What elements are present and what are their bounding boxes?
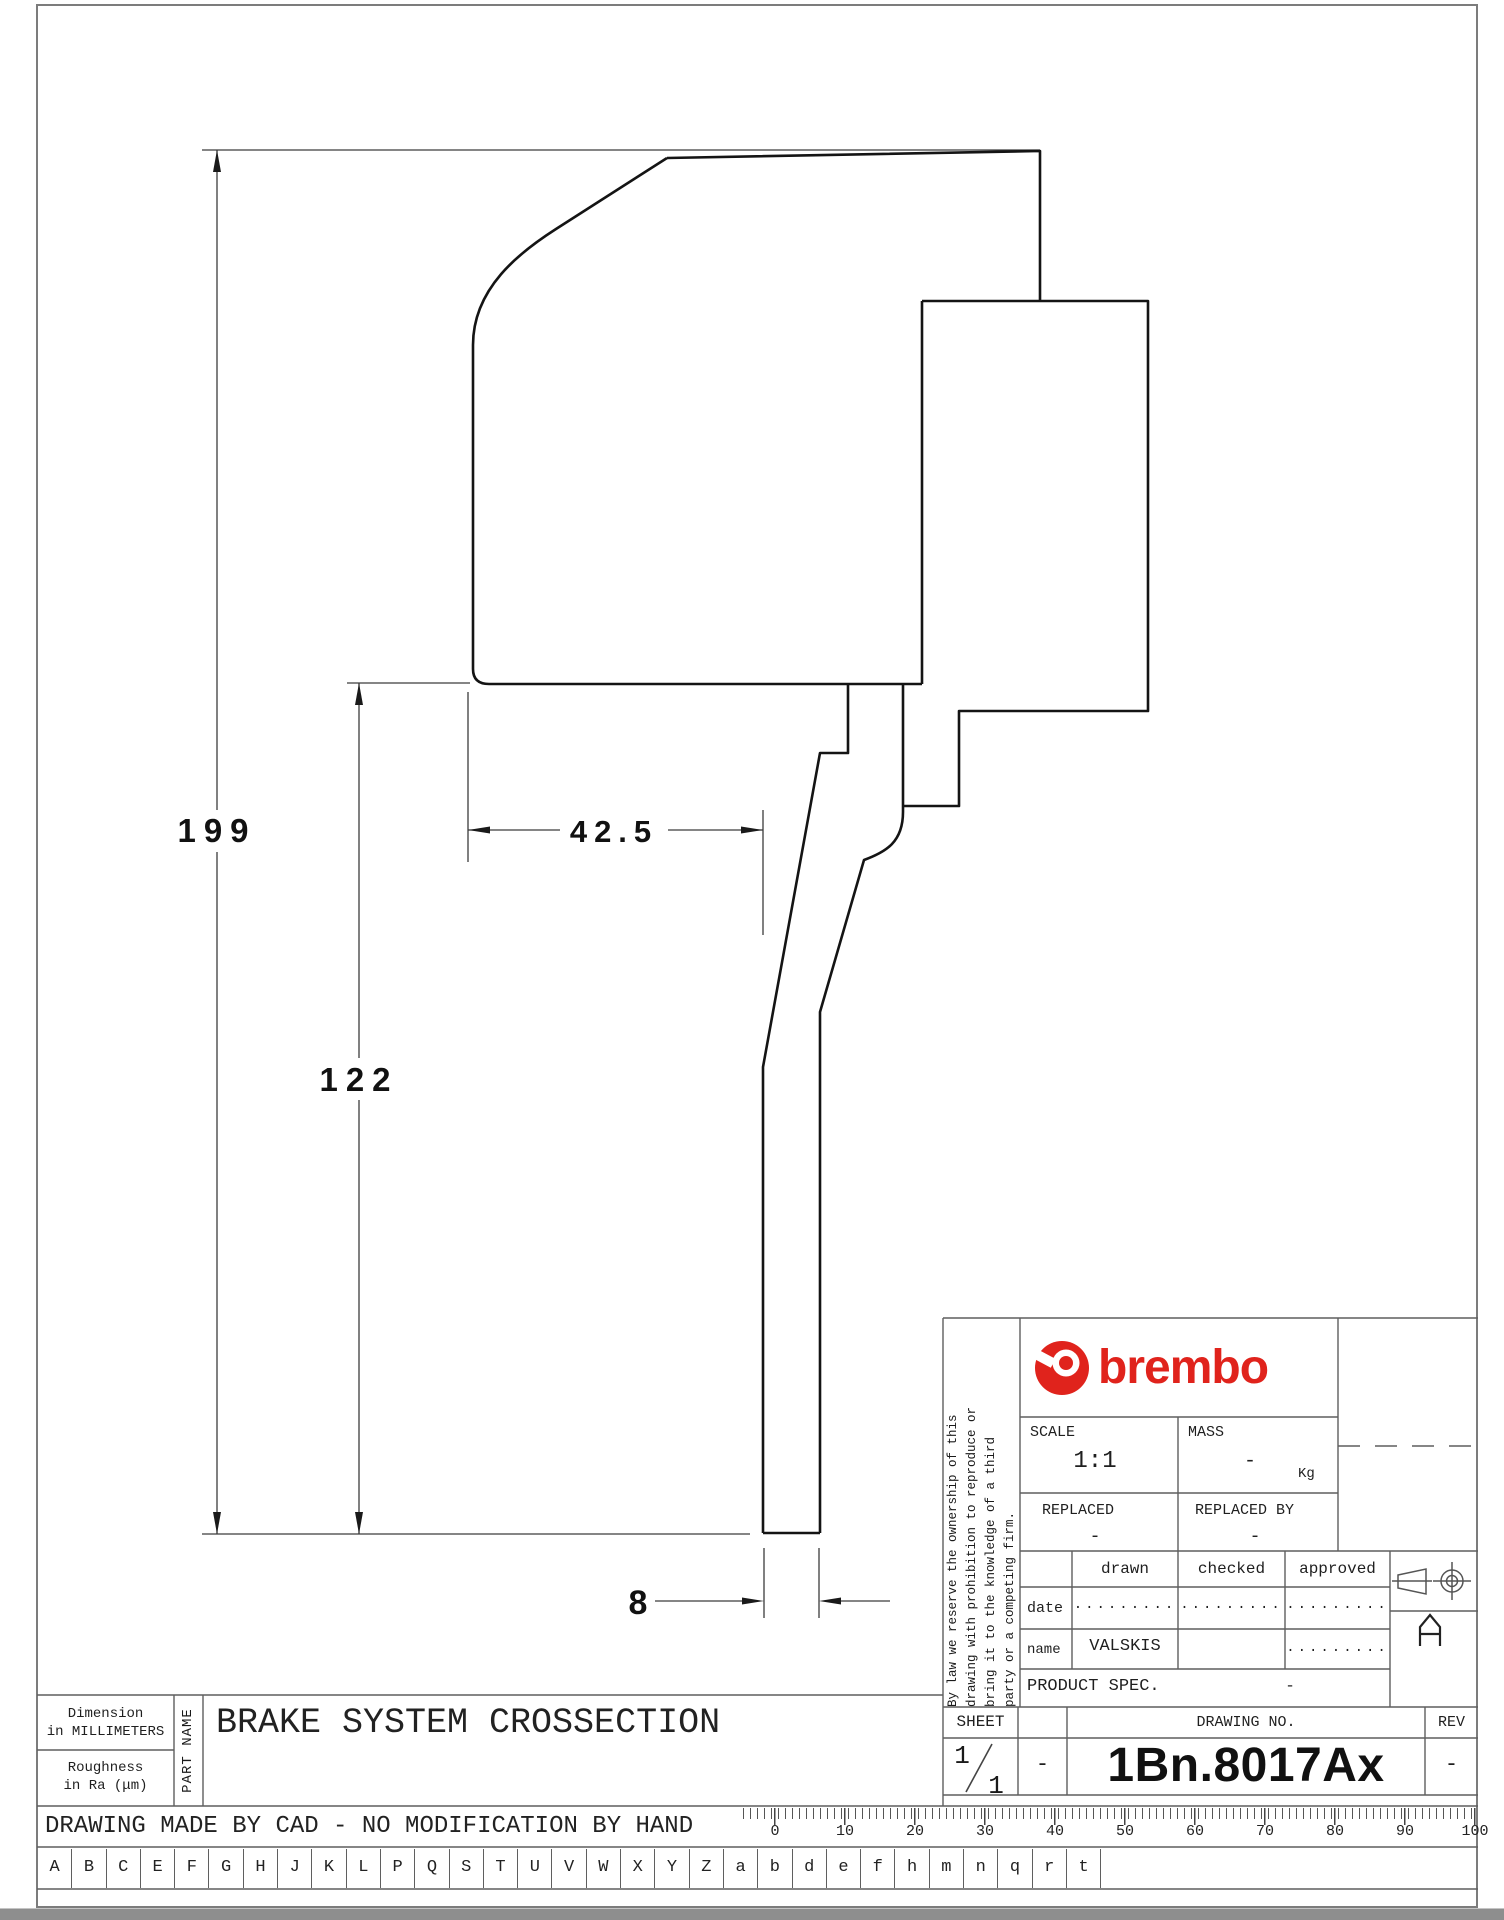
sheet-dash-value: - (1018, 1752, 1067, 1777)
scale-value: 1:1 (1040, 1448, 1150, 1475)
letter-cell: m (930, 1849, 964, 1888)
letter-cell: e (827, 1849, 861, 1888)
replaced-by-value: - (1210, 1527, 1300, 1547)
letter-cell: Y (655, 1849, 689, 1888)
column-approved: approved (1285, 1560, 1390, 1578)
drawing-number: 1Bn.8017Ax (1067, 1740, 1425, 1792)
mass-value: - (1210, 1450, 1290, 1473)
ruler-number: 0 (740, 1823, 810, 1845)
date-approved-dots: ......... (1285, 1597, 1390, 1613)
sheet-number: 1 (954, 1741, 970, 1771)
ruler-number: 100 (1440, 1823, 1504, 1845)
letter-cell: K (312, 1849, 346, 1888)
dim-122-label: 122 (319, 1061, 398, 1098)
letter-cell: J (278, 1849, 312, 1888)
letter-cell: d (793, 1849, 827, 1888)
ruler-scale: 0102030405060708090100 (740, 1823, 1504, 1845)
letter-cell: f (861, 1849, 895, 1888)
brembo-logo-icon (1028, 1341, 1089, 1395)
replaced-by-label: REPLACED BY (1195, 1502, 1294, 1519)
letter-cell: S (450, 1849, 484, 1888)
dimension-note-line2: in MILLIMETERS (37, 1724, 174, 1742)
ruler-number: 50 (1090, 1823, 1160, 1845)
column-checked: checked (1178, 1560, 1285, 1578)
name-drawn-value: VALSKIS (1072, 1637, 1178, 1656)
part-name-label: PART NAME (174, 1695, 203, 1806)
letter-cell: P (381, 1849, 415, 1888)
roughness-note: Roughness in Ra (μm) (37, 1760, 174, 1795)
ruler-number: 40 (1020, 1823, 1090, 1845)
mass-unit: Kg (1298, 1466, 1315, 1482)
roughness-note-line1: Roughness (37, 1760, 174, 1778)
letter-cell: V (552, 1849, 586, 1888)
replaced-value: - (1050, 1527, 1140, 1547)
date-checked-dots: ......... (1178, 1597, 1285, 1613)
bottom-strip (0, 1908, 1504, 1920)
projection-symbol-icon (1392, 1562, 1471, 1600)
row-date-label: date (1027, 1600, 1063, 1617)
column-drawn: drawn (1072, 1560, 1178, 1578)
ruler-number: 60 (1160, 1823, 1230, 1845)
letter-cell: r (1033, 1849, 1067, 1888)
disclaimer-line: party or a competing firm. (1001, 1318, 1020, 1707)
dimension-lines (202, 150, 1040, 1618)
ruler-number: 30 (950, 1823, 1020, 1845)
letter-cell: q (998, 1849, 1032, 1888)
dim-199-label: 199 (177, 812, 256, 849)
brembo-wordmark: brembo (1098, 1338, 1338, 1398)
product-spec-label: PRODUCT SPEC. (1027, 1677, 1160, 1696)
letter-cell: Q (415, 1849, 449, 1888)
dim-8-label: 8 (629, 1584, 648, 1622)
letter-cell: Z (690, 1849, 724, 1888)
ruler-number: 10 (810, 1823, 880, 1845)
scale-label: SCALE (1030, 1424, 1075, 1441)
letter-cell: h (895, 1849, 929, 1888)
letter-cell: L (347, 1849, 381, 1888)
ruler-number: 90 (1370, 1823, 1440, 1845)
letter-cell: F (175, 1849, 209, 1888)
name-approved-dots: ......... (1285, 1640, 1390, 1656)
letter-cell: X (621, 1849, 655, 1888)
format-a-icon (1420, 1615, 1440, 1646)
letter-cell: W (587, 1849, 621, 1888)
letter-strip: ABCEFGHJKLPQSTUVWXYZabdefhmnqrt (38, 1849, 1478, 1888)
letter-cell: b (758, 1849, 792, 1888)
letter-cell: t (1067, 1849, 1101, 1888)
ruler-number: 80 (1300, 1823, 1370, 1845)
product-spec-value: - (1240, 1677, 1340, 1695)
dim-42-5-label: 42.5 (570, 814, 658, 849)
letter-cell: a (724, 1849, 758, 1888)
rev-label: REV (1425, 1714, 1478, 1731)
dimension-arrows (213, 150, 841, 1605)
letter-cell: A (38, 1849, 72, 1888)
drawing-no-label: DRAWING NO. (1067, 1714, 1425, 1731)
sheet-denominator: 1 (988, 1771, 1004, 1801)
disclaimer-line: bring it to the knowledge of a third (982, 1318, 1001, 1707)
sheet-label: SHEET (943, 1713, 1018, 1731)
ruler-number: 20 (880, 1823, 950, 1845)
ownership-disclaimer: By law we reserve the ownership of thisd… (943, 1318, 1020, 1707)
letter-cell: n (964, 1849, 998, 1888)
replaced-label: REPLACED (1042, 1502, 1114, 1519)
row-name-label: name (1027, 1642, 1061, 1658)
ruler-number: 70 (1230, 1823, 1300, 1845)
letter-cell: E (141, 1849, 175, 1888)
rev-value: - (1425, 1752, 1478, 1777)
cad-note: DRAWING MADE BY CAD - NO MODIFICATION BY… (45, 1813, 693, 1840)
letter-cell: H (244, 1849, 278, 1888)
disclaimer-line: drawing with prohibition to reproduce or (963, 1318, 982, 1707)
letter-cell: T (484, 1849, 518, 1888)
disclaimer-line: By law we reserve the ownership of this (944, 1318, 963, 1707)
cad-drawing-sheet: 199 122 42.5 8 1 1 By (0, 0, 1504, 1920)
roughness-note-line2: in Ra (μm) (37, 1778, 174, 1796)
date-drawn-dots: ......... (1072, 1597, 1178, 1613)
letter-cell: U (518, 1849, 552, 1888)
letter-cell: B (72, 1849, 106, 1888)
drawing-canvas: 199 122 42.5 8 1 1 (0, 0, 1504, 1920)
mass-label: MASS (1188, 1424, 1224, 1441)
dimension-note: Dimension in MILLIMETERS (37, 1706, 174, 1741)
letter-cell: G (209, 1849, 243, 1888)
dimension-note-line1: Dimension (37, 1706, 174, 1724)
letter-cell: C (107, 1849, 141, 1888)
part-name-title: BRAKE SYSTEM CROSSECTION (216, 1703, 720, 1743)
